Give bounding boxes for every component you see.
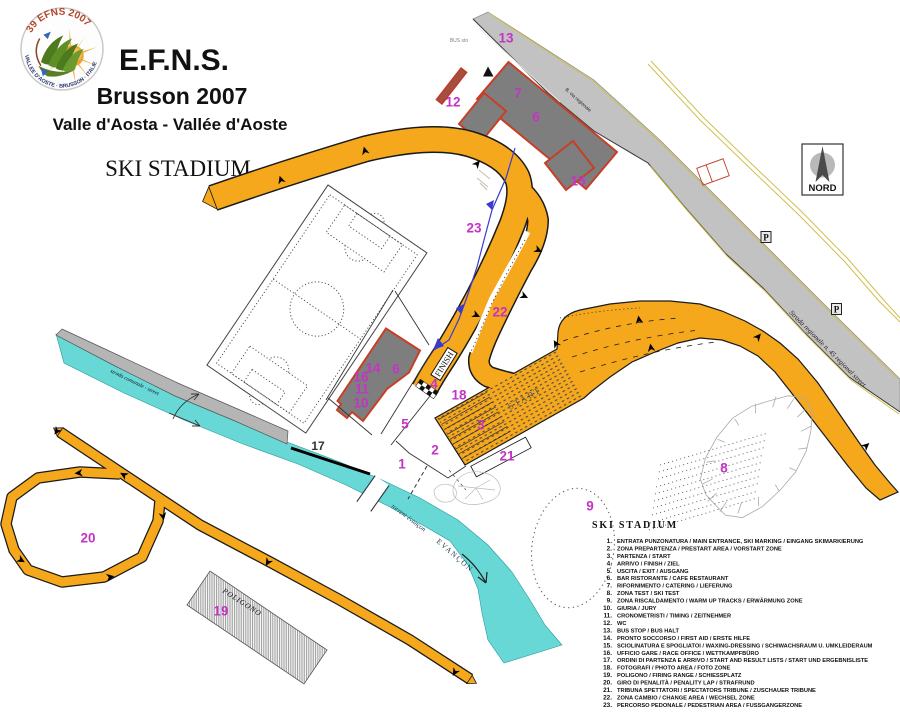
- svg-text:11.: 11.: [603, 613, 612, 620]
- svg-text:GIRO DI PENALITÀ / PENALITY LA: GIRO DI PENALITÀ / PENALITY LAP / STRAFR…: [617, 680, 755, 687]
- svg-text:ARRIVO / FINISH / ZIEL: ARRIVO / FINISH / ZIEL: [617, 561, 680, 567]
- svg-text:RIFORNIMENTO / CATERING / LIEF: RIFORNIMENTO / CATERING / LIEFERUNG: [617, 584, 733, 590]
- svg-text:ORDINI DI PARTENZA E ARRIVO /: ORDINI DI PARTENZA E ARRIVO / START AND …: [617, 658, 868, 664]
- svg-text:BUS sto: BUS sto: [450, 38, 469, 44]
- svg-text:GIURIA / JURY: GIURIA / JURY: [617, 606, 657, 612]
- svg-text:POLIGONO / FIRING RANGE / SCHI: POLIGONO / FIRING RANGE / SCHIESSPLATZ: [617, 673, 742, 679]
- svg-text:ZONA RISCALDAMENTO / WARM UP T: ZONA RISCALDAMENTO / WARM UP TRACKS / ER…: [617, 598, 803, 605]
- svg-text:PARTENZA / START: PARTENZA / START: [617, 554, 671, 560]
- svg-text:18: 18: [451, 388, 467, 403]
- svg-text:ZONA CAMBIO / CHANGE AREA / WE: ZONA CAMBIO / CHANGE AREA / WECHSEL ZONE: [617, 696, 755, 702]
- svg-text:9.: 9.: [607, 598, 613, 605]
- svg-text:6: 6: [392, 362, 400, 377]
- svg-text:16.: 16.: [603, 650, 612, 657]
- svg-text:3.: 3.: [607, 553, 613, 560]
- svg-text:20.: 20.: [603, 680, 612, 687]
- svg-text:6: 6: [532, 110, 540, 125]
- svg-text:NORD: NORD: [809, 183, 837, 194]
- svg-text:ENTRATA PUNZONATURA / MAIN ENT: ENTRATA PUNZONATURA / MAIN ENTRANCE, SKI…: [617, 539, 864, 545]
- svg-text:UFFICIO GARE / RACE OFFICE / W: UFFICIO GARE / RACE OFFICE / WETTKAMPFBÜ…: [617, 650, 759, 657]
- svg-text:5: 5: [401, 417, 409, 432]
- svg-text:2.: 2.: [607, 546, 613, 553]
- svg-text:17: 17: [311, 439, 325, 453]
- svg-text:12.: 12.: [603, 620, 612, 627]
- svg-text:SCIOLINATURA E SPOGLIATOI / WA: SCIOLINATURA E SPOGLIATOI / WAXING-DRESS…: [617, 643, 873, 649]
- svg-text:7: 7: [514, 86, 522, 101]
- svg-text:19.: 19.: [603, 672, 612, 679]
- svg-text:13.: 13.: [603, 627, 612, 634]
- svg-text:FOTOGRAFI / PHOTO AREA / FOTO: FOTOGRAFI / PHOTO AREA / FOTO ZONE: [617, 666, 731, 672]
- svg-text:PRONTO SOCCORSO / FIRST AID /: PRONTO SOCCORSO / FIRST AID / ERSTE HILF…: [617, 636, 750, 642]
- svg-text:CRONOMETRISTI / TIMING / ZEITN: CRONOMETRISTI / TIMING / ZEITNEHMER: [617, 614, 731, 620]
- svg-text:1: 1: [398, 457, 406, 472]
- svg-text:22: 22: [492, 305, 507, 320]
- svg-text:ZONA TEST / SKI TEST: ZONA TEST / SKI TEST: [617, 591, 680, 597]
- svg-text:WC: WC: [617, 621, 626, 627]
- svg-text:Brusson 2007: Brusson 2007: [97, 83, 248, 109]
- svg-text:18.: 18.: [603, 665, 612, 672]
- svg-text:P: P: [834, 305, 840, 315]
- svg-text:BAR RISTORANTE / CAFE RESTAURA: BAR RISTORANTE / CAFE RESTAURANT: [617, 576, 729, 582]
- svg-text:6.: 6.: [607, 575, 613, 582]
- svg-text:BUS STOP / BUS HALT: BUS STOP / BUS HALT: [617, 628, 679, 634]
- svg-text:4: 4: [430, 377, 438, 392]
- svg-text:15: 15: [570, 174, 586, 189]
- svg-text:5.: 5.: [607, 568, 613, 575]
- svg-text:SKI STADIUM: SKI STADIUM: [592, 520, 678, 531]
- svg-text:PERCORSO PEDONALE / PEDESTRIAN: PERCORSO PEDONALE / PEDESTRIAN AREA / FU…: [617, 703, 802, 709]
- svg-text:3: 3: [477, 418, 485, 433]
- svg-text:10.: 10.: [603, 605, 612, 612]
- svg-text:7.: 7.: [607, 583, 613, 590]
- svg-text:P: P: [763, 233, 769, 243]
- svg-text:16: 16: [353, 370, 369, 385]
- svg-text:23: 23: [466, 221, 482, 236]
- svg-text:21.: 21.: [603, 687, 612, 694]
- svg-text:23.: 23.: [603, 702, 612, 709]
- svg-text:Valle d'Aosta - Vallée d'Aoste: Valle d'Aosta - Vallée d'Aoste: [53, 115, 288, 134]
- svg-text:ZONA PREPARTENZA / PRESTART AR: ZONA PREPARTENZA / PRESTART AREA / VORST…: [617, 547, 782, 553]
- svg-text:4.: 4.: [607, 560, 613, 567]
- svg-text:1.: 1.: [607, 538, 613, 545]
- svg-text:20: 20: [80, 531, 95, 546]
- svg-text:19: 19: [213, 604, 228, 619]
- svg-text:2: 2: [431, 443, 439, 458]
- svg-text:USCITA / EXIT / AUSGANG: USCITA / EXIT / AUSGANG: [617, 569, 689, 575]
- svg-text:22.: 22.: [603, 695, 612, 702]
- svg-text:8: 8: [720, 461, 728, 476]
- svg-text:14.: 14.: [603, 635, 612, 642]
- svg-text:E.F.N.S.: E.F.N.S.: [119, 44, 229, 77]
- svg-text:9: 9: [586, 499, 594, 514]
- svg-text:8.: 8.: [607, 590, 613, 597]
- svg-text:13: 13: [498, 31, 514, 46]
- svg-text:10: 10: [353, 396, 368, 411]
- svg-text:12: 12: [445, 95, 460, 110]
- svg-text:15.: 15.: [603, 642, 612, 649]
- svg-text:17.: 17.: [603, 657, 612, 664]
- svg-text:SKI STADIUM: SKI STADIUM: [105, 156, 251, 181]
- svg-text:21: 21: [499, 449, 515, 464]
- svg-text:TRIBUNA SPETTATORI / SPECTATOR: TRIBUNA SPETTATORI / SPECTATORS TRIBUNE …: [617, 688, 816, 694]
